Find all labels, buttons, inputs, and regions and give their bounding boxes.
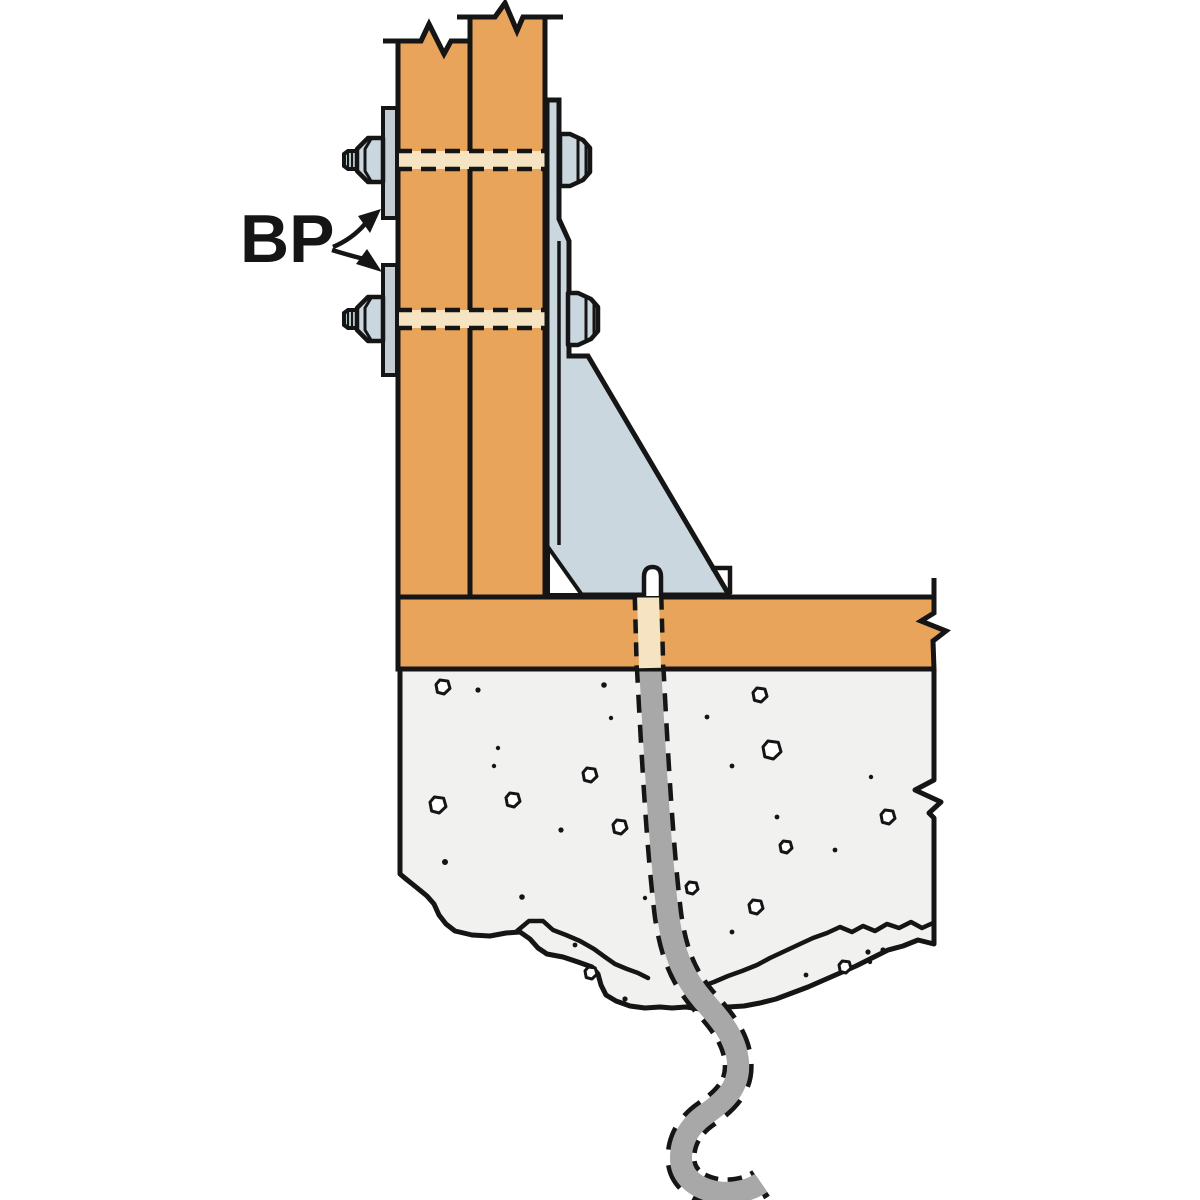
aggregate-dot (880, 947, 885, 952)
aggregate-dot (573, 943, 578, 948)
bp-label: BP (240, 201, 334, 277)
bolt-head (357, 297, 383, 341)
aggregate-dot (519, 894, 525, 900)
aggregate-dot (869, 775, 873, 779)
aggregate-pebble (839, 961, 851, 973)
bp-arrow-upper-shaft (333, 224, 365, 247)
post-right (470, 3, 545, 597)
aggregate-pebble (753, 688, 767, 702)
aggregate-pebble (881, 810, 895, 824)
aggregate-pebble (436, 680, 450, 694)
aggregate-dot (622, 996, 627, 1001)
aggregate-pebble (749, 900, 763, 914)
bp-bearing-plate-detail-diagram: BP (0, 0, 1200, 1200)
aggregate-dot (705, 715, 710, 720)
aggregate-pebble (583, 768, 597, 782)
aggregate-dot (643, 896, 647, 900)
aggregate-pebble (763, 741, 781, 759)
aggregate-pebble (613, 820, 627, 834)
aggregate-dot (609, 716, 613, 720)
double-post (383, 3, 563, 597)
bolt-hole-top (397, 151, 546, 169)
sill-plate-body (398, 597, 946, 669)
bolt-hole-bottom (397, 310, 546, 328)
aggregate-dot (868, 960, 872, 964)
aggregate-dot (775, 815, 780, 820)
bp-callout: BP (240, 201, 382, 277)
aggregate-dot (475, 687, 480, 692)
aggregate-dot (804, 973, 809, 978)
hex-bolt-lower (344, 297, 383, 341)
aggregate-dot (865, 949, 870, 954)
aggregate-dot (558, 827, 563, 832)
aggregate-dot (496, 746, 500, 750)
aggregate-pebble (430, 797, 446, 813)
hex-bolt-upper (344, 138, 383, 182)
hex-nut-lower (568, 293, 598, 345)
aggregate-dot (730, 764, 735, 769)
bp-arrow-lower-shaft (332, 250, 364, 259)
aggregate-dot (730, 930, 735, 935)
hex-nut-upper (560, 134, 590, 186)
bp-arrow-lower-head (356, 249, 382, 272)
anchor-slot-dome (644, 567, 661, 596)
aggregate-pebble (506, 793, 520, 807)
anchor-bolt-hole-core (648, 594, 650, 668)
aggregate-dot (442, 859, 448, 865)
aggregate-dot (492, 764, 496, 768)
aggregate-pebble (686, 882, 698, 894)
bolt-head (357, 138, 383, 182)
aggregate-dot (601, 682, 607, 688)
aggregate-pebble (585, 967, 597, 979)
aggregate-dot (833, 848, 838, 853)
aggregate-pebble (780, 841, 792, 853)
